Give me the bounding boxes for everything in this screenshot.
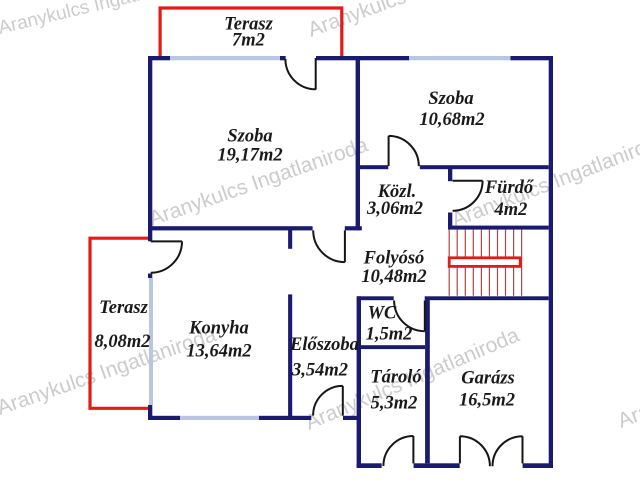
svg-text:16,5m2: 16,5m2 xyxy=(459,390,515,410)
svg-text:Garázs: Garázs xyxy=(461,368,514,388)
svg-text:10,48m2: 10,48m2 xyxy=(361,267,426,287)
svg-text:7m2: 7m2 xyxy=(232,31,265,51)
svg-text:Szoba: Szoba xyxy=(227,127,272,147)
svg-text:Szoba: Szoba xyxy=(428,89,473,109)
svg-text:8,08m2: 8,08m2 xyxy=(94,332,150,352)
svg-text:3,06m2: 3,06m2 xyxy=(366,199,423,219)
svg-text:Folyósó: Folyósó xyxy=(363,248,425,268)
svg-text:Konyha: Konyha xyxy=(188,318,249,338)
svg-text:4m2: 4m2 xyxy=(494,200,528,220)
svg-text:3,54m2: 3,54m2 xyxy=(291,361,348,381)
svg-text:Előszoba: Előszoba xyxy=(289,335,359,355)
svg-text:Terasz: Terasz xyxy=(99,298,148,318)
svg-text:Fürdő: Fürdő xyxy=(484,178,535,198)
svg-text:10,68m2: 10,68m2 xyxy=(419,110,484,130)
svg-text:1,5m2: 1,5m2 xyxy=(366,324,413,344)
svg-text:Tároló: Tároló xyxy=(370,367,421,387)
svg-text:5,3m2: 5,3m2 xyxy=(371,393,418,413)
svg-text:19,17m2: 19,17m2 xyxy=(217,146,282,166)
svg-text:WC: WC xyxy=(368,303,397,323)
svg-text:13,64m2: 13,64m2 xyxy=(186,341,251,361)
